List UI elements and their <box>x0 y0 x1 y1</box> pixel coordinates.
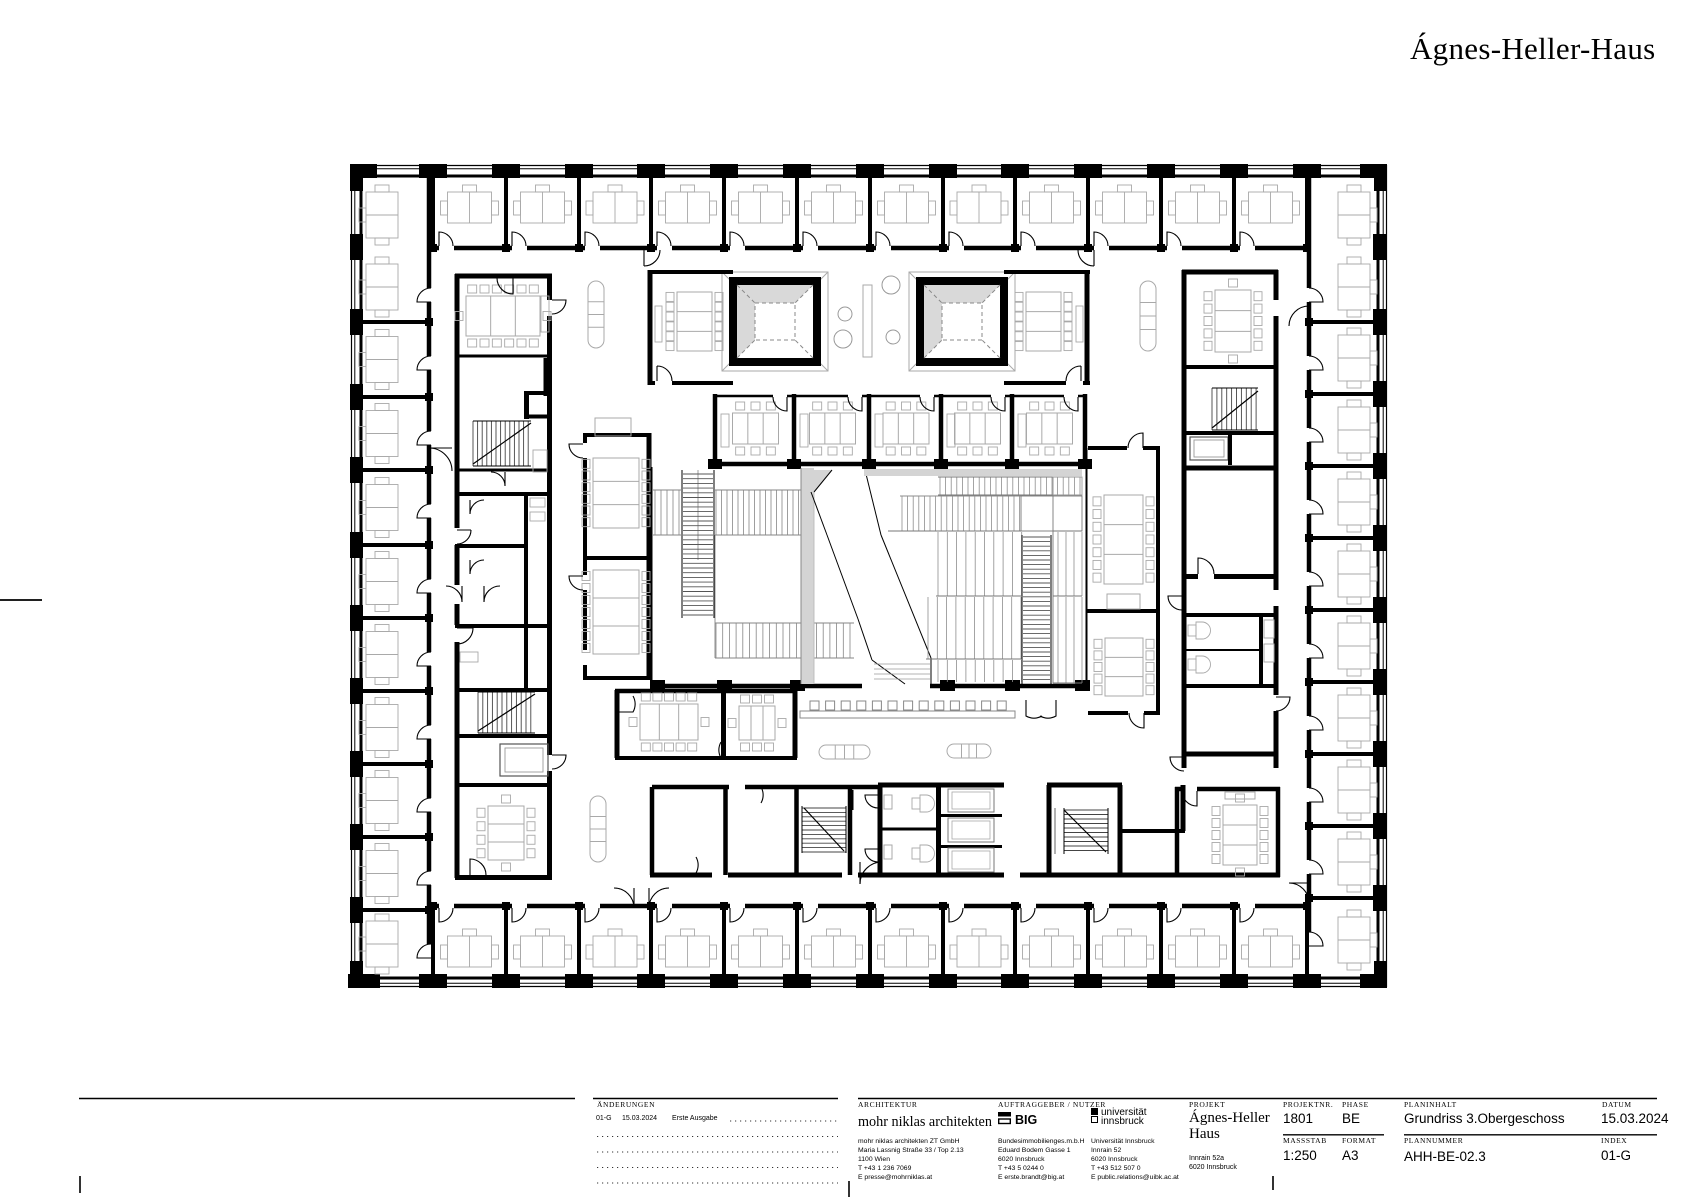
svg-text:AUFTRAGGEBER / NUTZER: AUFTRAGGEBER / NUTZER <box>998 1100 1106 1109</box>
svg-text:E erste.brandt@big.at: E erste.brandt@big.at <box>998 1174 1064 1181</box>
svg-text:BE: BE <box>1342 1111 1360 1126</box>
svg-text:DATUM: DATUM <box>1602 1100 1632 1109</box>
svg-text:E presse@mohrniklas.at: E presse@mohrniklas.at <box>858 1174 932 1181</box>
svg-text:6020 Innsbruck: 6020 Innsbruck <box>1189 1164 1237 1171</box>
svg-text:1801: 1801 <box>1283 1111 1313 1126</box>
svg-text:ÄNDERUNGEN: ÄNDERUNGEN <box>597 1100 655 1109</box>
svg-text:T +43 512 507 0: T +43 512 507 0 <box>1091 1165 1141 1172</box>
svg-text:A3: A3 <box>1342 1148 1359 1163</box>
svg-text:6020 Innsbruck: 6020 Innsbruck <box>998 1156 1045 1163</box>
svg-text:BIG: BIG <box>1015 1113 1037 1127</box>
svg-text:Innrain 52: Innrain 52 <box>1091 1147 1121 1154</box>
svg-text:Maria Lassnig Straße 33 / Top: Maria Lassnig Straße 33 / Top 2.13 <box>858 1147 964 1154</box>
svg-text:MASSSTAB: MASSSTAB <box>1283 1136 1327 1145</box>
svg-text:innsbruck: innsbruck <box>1101 1116 1145 1127</box>
svg-text:mohr niklas architekten ZT Gmb: mohr niklas architekten ZT GmbH <box>858 1138 960 1145</box>
svg-text:Eduard Bodem Gasse 1: Eduard Bodem Gasse 1 <box>998 1147 1071 1154</box>
svg-text:Haus: Haus <box>1189 1126 1220 1142</box>
svg-text:mohr niklas architekten: mohr niklas architekten <box>858 1114 992 1130</box>
svg-text:FORMAT: FORMAT <box>1342 1136 1376 1145</box>
svg-text:PLANNUMMER: PLANNUMMER <box>1404 1136 1463 1145</box>
svg-text:ARCHITEKTUR: ARCHITEKTUR <box>858 1100 918 1109</box>
svg-text:PROJEKT: PROJEKT <box>1189 1100 1225 1109</box>
svg-text:Bundesimmobilienges.m.b.H: Bundesimmobilienges.m.b.H <box>998 1138 1085 1145</box>
svg-text:Ágnes-Heller: Ágnes-Heller <box>1189 1109 1270 1126</box>
svg-text:15.03.2024: 15.03.2024 <box>622 1115 657 1122</box>
svg-text:PHASE: PHASE <box>1342 1100 1369 1109</box>
svg-text:1100 Wien: 1100 Wien <box>858 1156 890 1163</box>
svg-text:E public.relations@uibk.ac.at: E public.relations@uibk.ac.at <box>1091 1174 1179 1181</box>
svg-text:01-G: 01-G <box>596 1115 612 1122</box>
svg-text:T +43 5 0244 0: T +43 5 0244 0 <box>998 1165 1044 1172</box>
svg-text:PROJEKTNR.: PROJEKTNR. <box>1283 1100 1333 1109</box>
svg-text:Innrain 52a: Innrain 52a <box>1189 1155 1224 1162</box>
svg-text:01-G: 01-G <box>1601 1148 1631 1163</box>
svg-text:Universität Innsbruck: Universität Innsbruck <box>1091 1138 1155 1145</box>
svg-text:AHH-BE-02.3: AHH-BE-02.3 <box>1404 1149 1486 1164</box>
svg-text:INDEX: INDEX <box>1601 1136 1627 1145</box>
svg-text:T +43 1 236 7069: T +43 1 236 7069 <box>858 1165 912 1172</box>
svg-text:Erste Ausgabe: Erste Ausgabe <box>672 1115 718 1122</box>
svg-text:Grundriss 3.Obergeschoss: Grundriss 3.Obergeschoss <box>1404 1111 1565 1126</box>
svg-text:15.03.2024: 15.03.2024 <box>1601 1111 1669 1126</box>
svg-text:Ágnes-Heller-Haus: Ágnes-Heller-Haus <box>1410 31 1656 66</box>
svg-text:6020 Innsbruck: 6020 Innsbruck <box>1091 1156 1138 1163</box>
svg-text:PLANINHALT: PLANINHALT <box>1404 1100 1457 1109</box>
svg-text:1:250: 1:250 <box>1283 1148 1317 1163</box>
